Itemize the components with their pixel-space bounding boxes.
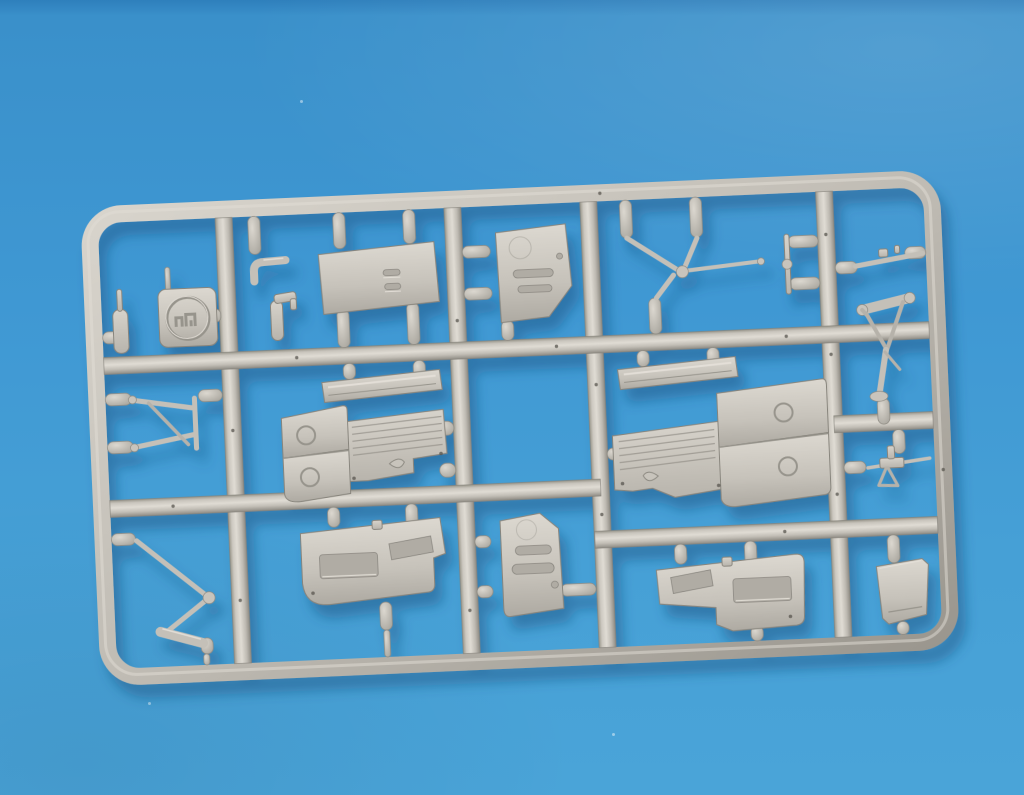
horizontal-runner-middle-left [110, 479, 601, 517]
hinge-stub [372, 520, 382, 529]
door-handle-hole [551, 581, 558, 588]
sprue [80, 169, 960, 686]
photo-model-kit-sprue [0, 0, 1024, 795]
dust-speck [300, 100, 303, 103]
louvre-slot [515, 545, 551, 556]
part-zigzag-skid-strut [137, 538, 218, 646]
part-rectangular-strip-right [617, 356, 738, 389]
part-maker-logo-tab [158, 287, 218, 347]
part-fuselage-side-panel-left [300, 517, 447, 605]
part-bent-elbow-lever [253, 258, 286, 281]
part-wishbone-strut [627, 232, 766, 299]
hinge-stub [722, 557, 732, 566]
dust-speck [612, 733, 615, 736]
part-rectangular-strip-left [321, 369, 442, 402]
dust-speck [148, 702, 151, 705]
part-post-with-pin [112, 289, 130, 354]
part-landing-gear-leg [856, 292, 920, 402]
part-tripod-strut-frame [128, 393, 196, 452]
part-slotted-rectangular-panel [318, 241, 440, 314]
horizontal-runner-middle-right [595, 516, 938, 548]
rivet-hole [556, 253, 562, 259]
part-trapezoid-panel [876, 558, 931, 624]
part-wing-flap-assembly-right [610, 379, 831, 512]
part-pump-handle [270, 291, 299, 340]
part-door-panel-with-vents [495, 224, 573, 323]
part-twin-pin-rod [781, 233, 821, 295]
vertical-runner-3 [580, 201, 616, 647]
flap-ribbed-section [612, 421, 721, 500]
part-fuselage-side-panel-right [656, 554, 807, 634]
vertical-runner-1 [215, 217, 251, 663]
louvre-slot [512, 563, 554, 575]
part-cabin-door-panel [500, 512, 564, 617]
